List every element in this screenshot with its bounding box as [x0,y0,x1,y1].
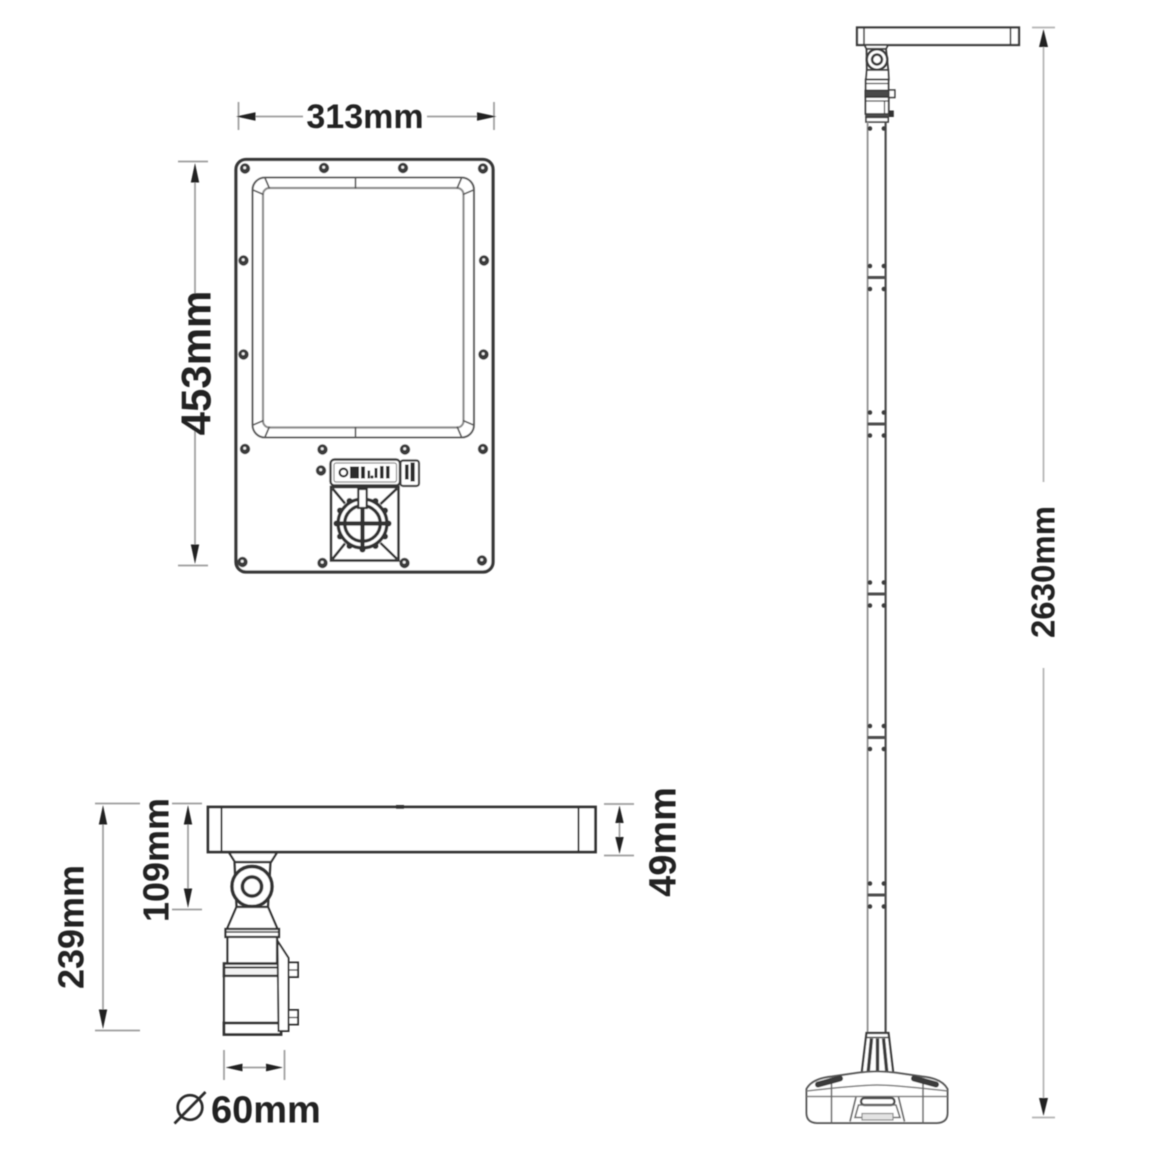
svg-text:239mm: 239mm [51,865,92,989]
svg-text:2630mm: 2630mm [1025,506,1062,638]
svg-text:453mm: 453mm [173,291,220,436]
svg-text:49mm: 49mm [643,787,685,897]
svg-text:109mm: 109mm [136,798,177,922]
svg-text:313mm: 313mm [306,98,423,136]
svg-text:60mm: 60mm [211,1090,321,1132]
